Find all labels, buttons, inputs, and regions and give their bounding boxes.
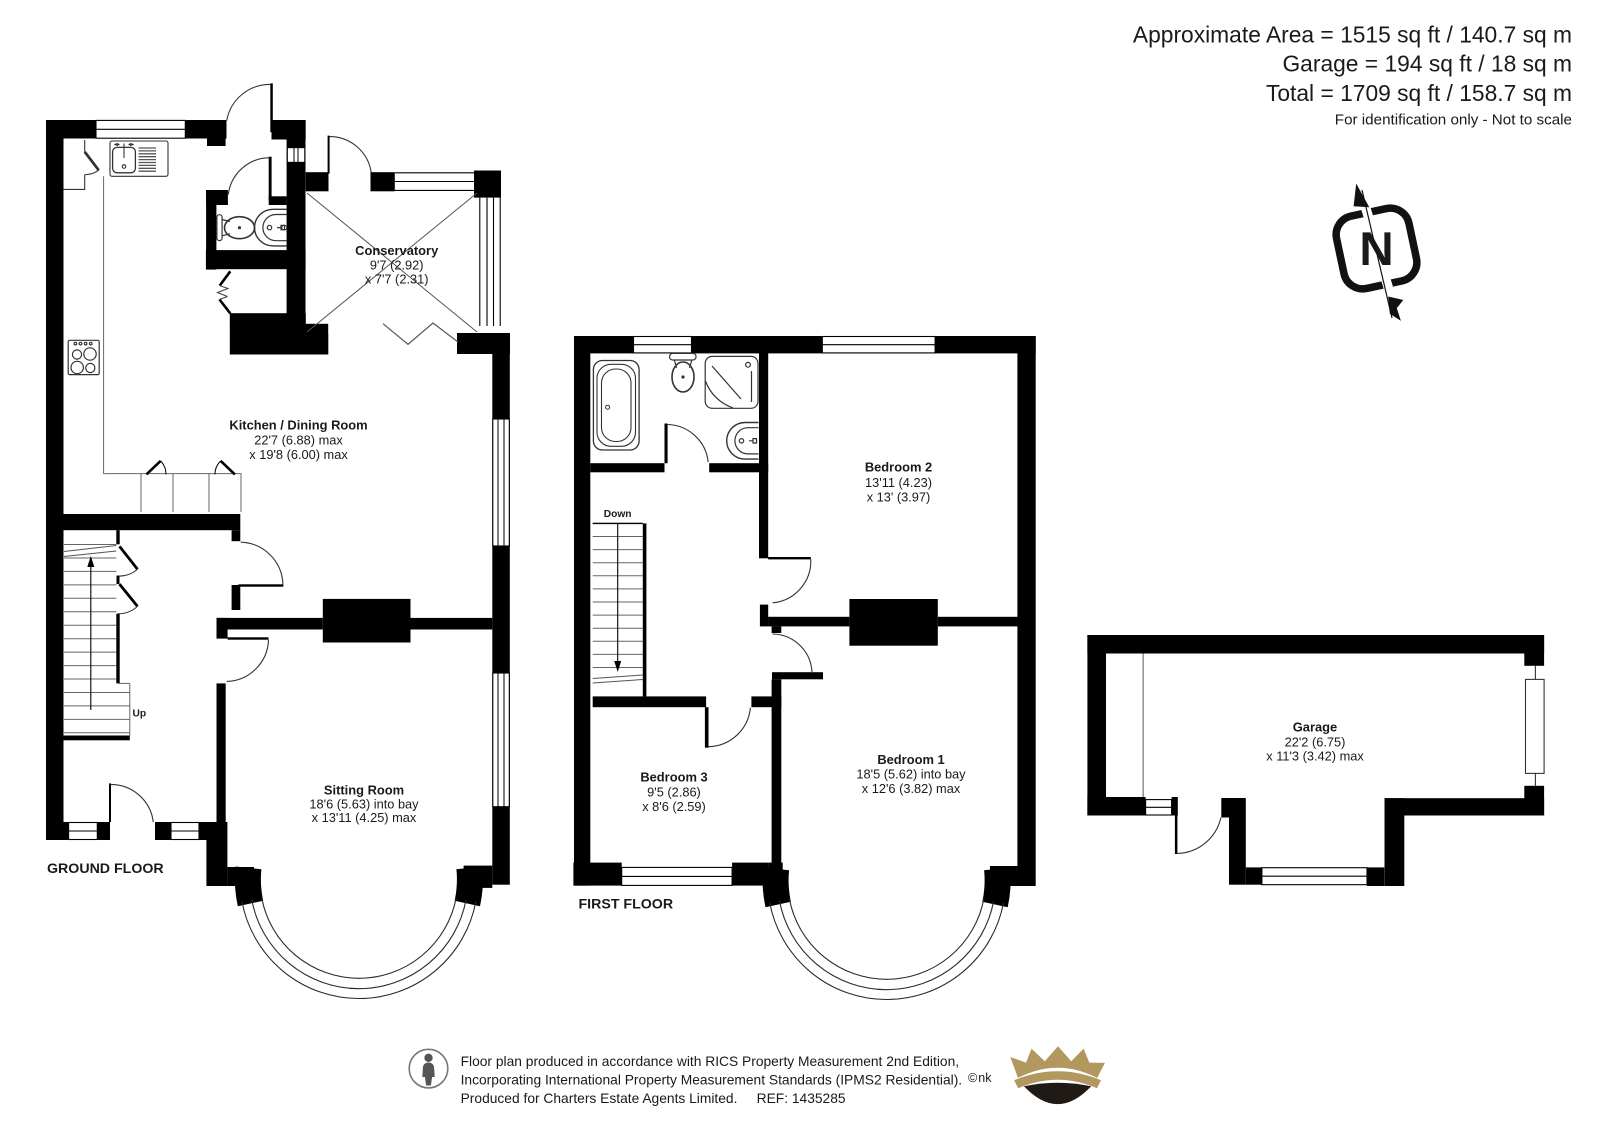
svg-text:Approximate Area = 1515 sq ft: Approximate Area = 1515 sq ft / 140.7 sq… <box>1133 22 1572 48</box>
svg-text:13'11 (4.23): 13'11 (4.23) <box>865 475 932 490</box>
svg-text:Down: Down <box>604 509 632 520</box>
svg-text:Total = 1709 sq ft / 158.7 sq: Total = 1709 sq ft / 158.7 sq m <box>1266 80 1572 106</box>
svg-text:x 7'7 (2.31): x 7'7 (2.31) <box>365 272 429 287</box>
svg-text:Kitchen / Dining Room: Kitchen / Dining Room <box>229 418 367 433</box>
svg-text:22'7 (6.88) max: 22'7 (6.88) max <box>254 432 343 447</box>
svg-text:x 13' (3.97): x 13' (3.97) <box>867 490 931 505</box>
svg-text:Conservatory: Conservatory <box>355 243 439 258</box>
svg-text:Floor plan produced in accorda: Floor plan produced in accordance with R… <box>461 1054 959 1069</box>
svg-text:Bedroom 1: Bedroom 1 <box>877 752 944 767</box>
svg-text:x 11'3 (3.42) max: x 11'3 (3.42) max <box>1266 749 1364 764</box>
svg-text:Produced for Charters Estate A: Produced for Charters Estate Agents Limi… <box>461 1091 846 1106</box>
svg-text:22'2 (6.75): 22'2 (6.75) <box>1285 735 1346 750</box>
svg-text:Garage: Garage <box>1293 720 1337 735</box>
svg-text:x 13'11 (4.25) max: x 13'11 (4.25) max <box>312 810 417 825</box>
svg-text:9'5 (2.86): 9'5 (2.86) <box>647 785 701 800</box>
svg-text:© nk: © nk <box>968 1071 992 1085</box>
svg-text:x 19'8 (6.00) max: x 19'8 (6.00) max <box>249 447 348 462</box>
svg-text:Sitting Room: Sitting Room <box>324 783 404 798</box>
svg-text:Incorporating International Pr: Incorporating International Property Mea… <box>461 1073 963 1088</box>
svg-text:Bedroom 2: Bedroom 2 <box>865 460 932 475</box>
svg-text:18'5 (5.62) into bay: 18'5 (5.62) into bay <box>856 767 966 782</box>
svg-text:Bedroom 3: Bedroom 3 <box>640 770 707 785</box>
svg-text:For identification only - Not: For identification only - Not to scale <box>1335 111 1572 128</box>
svg-text:x 8'6 (2.59): x 8'6 (2.59) <box>642 799 706 814</box>
svg-text:FIRST FLOOR: FIRST FLOOR <box>579 896 674 912</box>
svg-text:9'7 (2.92): 9'7 (2.92) <box>370 257 424 272</box>
svg-text:GROUND FLOOR: GROUND FLOOR <box>47 861 164 877</box>
svg-text:Garage = 194 sq ft / 18 sq m: Garage = 194 sq ft / 18 sq m <box>1282 51 1572 77</box>
svg-text:Up: Up <box>133 709 147 720</box>
svg-text:x 12'6 (3.82) max: x 12'6 (3.82) max <box>862 781 961 796</box>
